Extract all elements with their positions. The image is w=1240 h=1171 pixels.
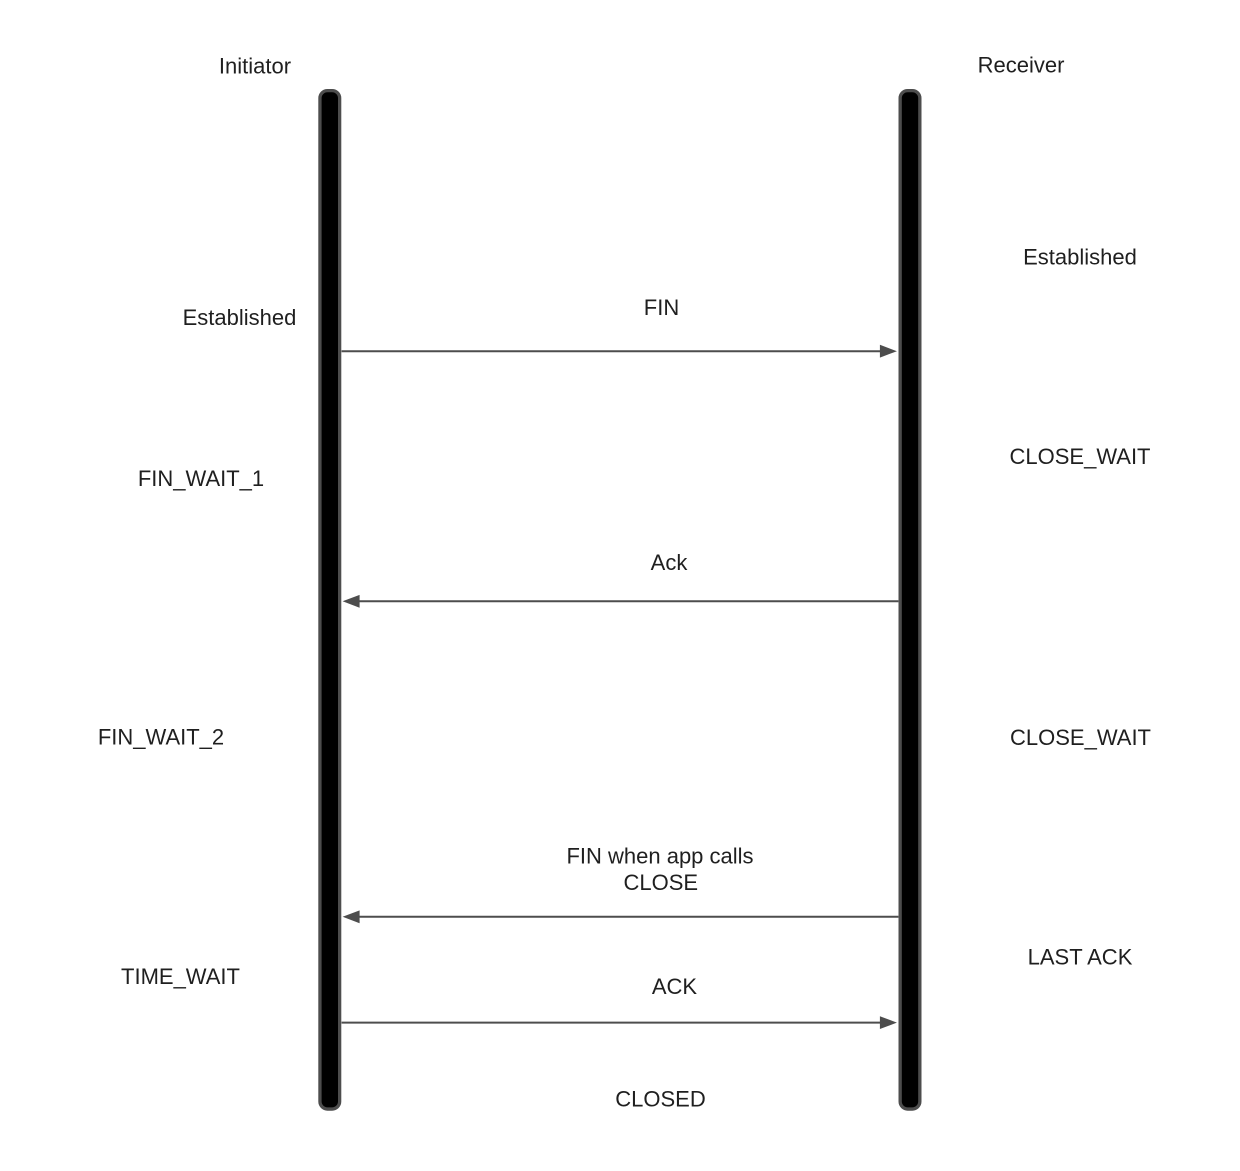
svg-text:LAST ACK: LAST ACK [1028,945,1133,970]
svg-text:CLOSE_WAIT: CLOSE_WAIT [1010,444,1151,469]
svg-text:Initiator: Initiator [219,54,291,79]
svg-text:CLOSED: CLOSED [615,1087,705,1112]
svg-text:FIN: FIN [644,295,679,320]
svg-text:FIN when app calls: FIN when app calls [566,844,753,869]
svg-text:ACK: ACK [652,974,698,999]
svg-text:FIN_WAIT_2: FIN_WAIT_2 [98,725,224,750]
svg-text:FIN_WAIT_1: FIN_WAIT_1 [138,466,264,491]
svg-text:Established: Established [1023,245,1137,270]
svg-text:CLOSE_WAIT: CLOSE_WAIT [1010,725,1151,750]
svg-text:TIME_WAIT: TIME_WAIT [121,964,240,989]
svg-text:Established: Established [183,305,297,330]
svg-text:Receiver: Receiver [978,53,1065,78]
svg-text:Ack: Ack [651,550,689,575]
svg-text:CLOSE: CLOSE [624,870,699,895]
